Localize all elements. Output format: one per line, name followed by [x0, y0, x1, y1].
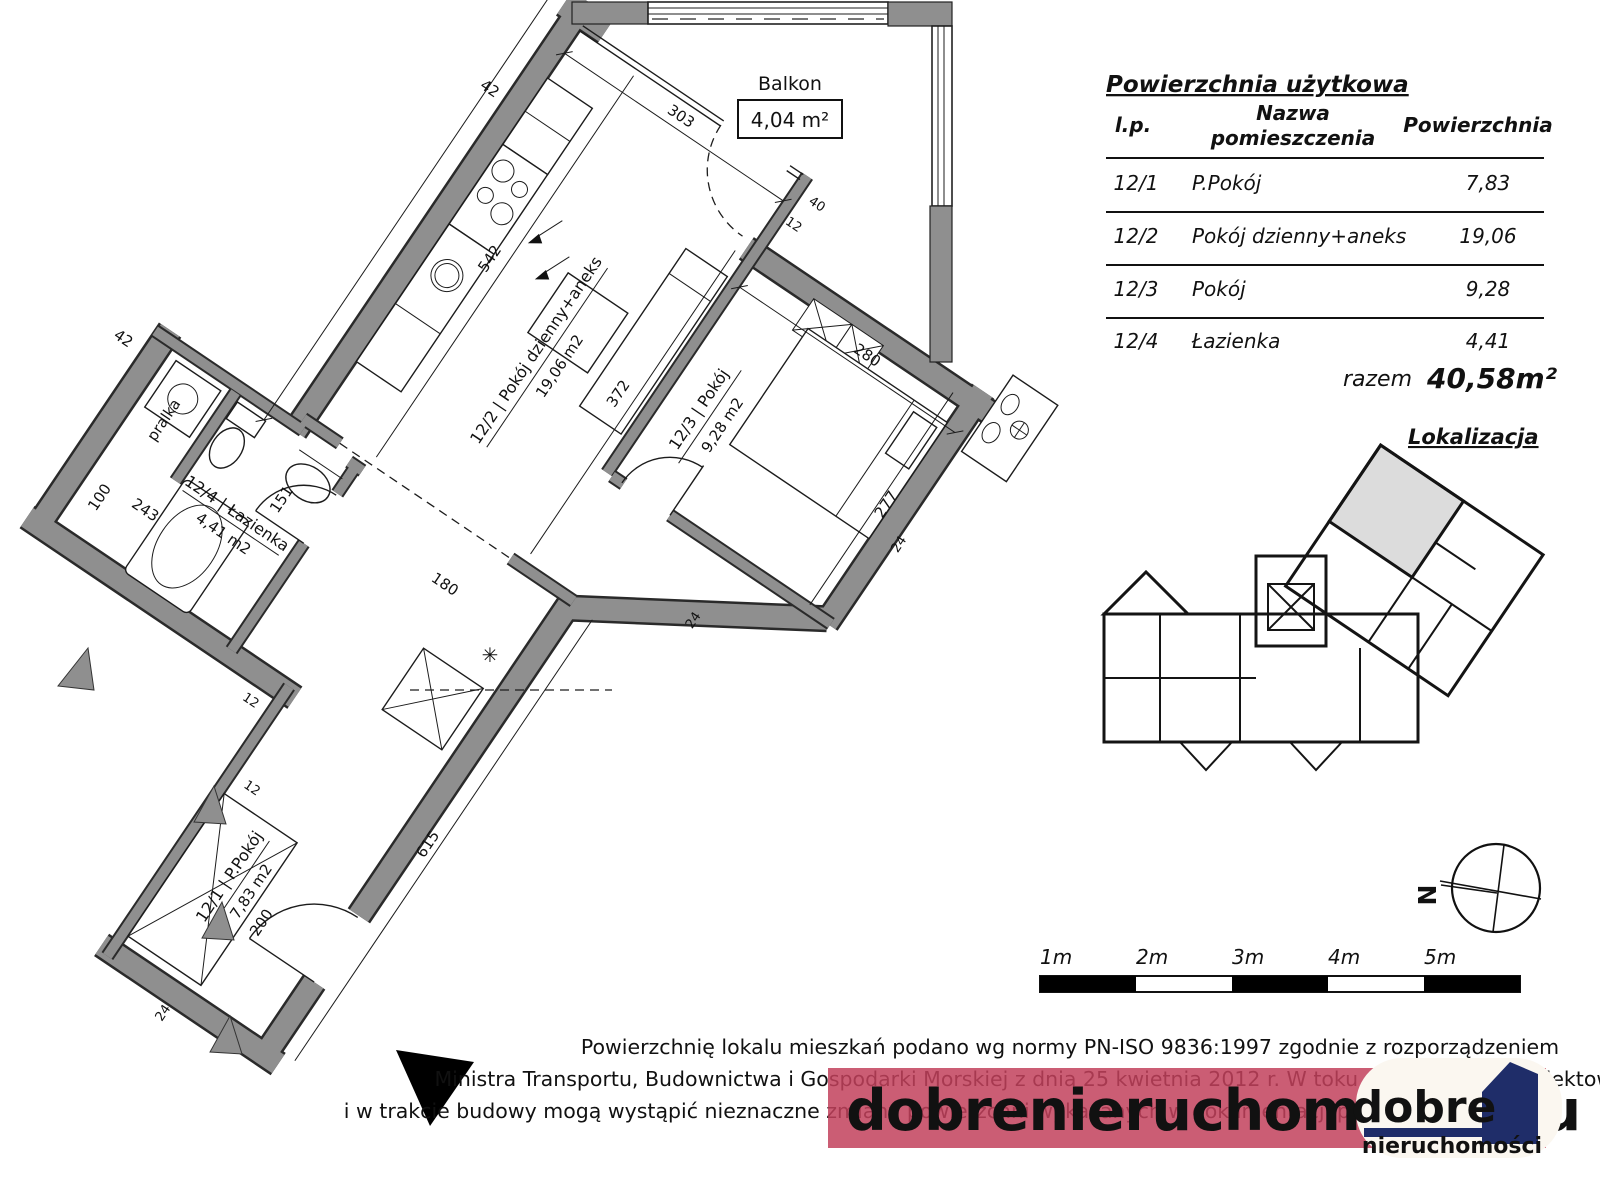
table-row: 12/1 P.Pokój 7,83 — [1114, 171, 1511, 195]
dim-100: 100 — [84, 480, 115, 514]
balcony: Balkon 4,04 m² — [572, 2, 952, 362]
dim-42b: 42 — [111, 326, 137, 352]
location-map — [1104, 445, 1543, 770]
scale-4m: 4m — [1328, 945, 1360, 969]
total-value: 40,58m² — [1426, 362, 1558, 395]
scale-bar: 1m 2m 3m 4m 5m — [1040, 945, 1520, 992]
row1-area: 7,83 — [1466, 171, 1511, 195]
scale-5m: 5m — [1424, 945, 1456, 969]
scale-2m: 2m — [1136, 945, 1168, 969]
row2-name: Pokój dzienny+aneks — [1192, 224, 1406, 248]
localization: Lokalizacja — [1104, 425, 1543, 770]
dim-180: 180 — [428, 569, 462, 600]
table-row: 12/4 Łazienka 4,41 — [1114, 329, 1511, 353]
table-row: 12/3 Pokój 9,28 — [1114, 277, 1511, 301]
scale-3m: 3m — [1232, 945, 1264, 969]
area-table: Powierzchnia użytkowa l.p. Nazwa pomiesz… — [1106, 72, 1558, 395]
col-header-name-1: Nazwa — [1256, 101, 1330, 125]
row4-name: Łazienka — [1191, 329, 1280, 353]
row1-lp: 12/1 — [1114, 171, 1159, 195]
balcony-area: 4,04 m² — [751, 108, 829, 132]
row3-lp: 12/3 — [1114, 277, 1159, 301]
dim-12b: 12 — [241, 778, 263, 800]
row4-lp: 12/4 — [1114, 329, 1159, 353]
row2-area: 19,06 — [1459, 224, 1516, 248]
floorplan-sheet: { "table": { "title": "Powierzchnia użyt… — [0, 0, 1600, 1180]
logo-text-bottom: nieruchomości — [1362, 1134, 1542, 1159]
row4-area: 4,41 — [1466, 329, 1511, 353]
disclaimer-line-1: Powierzchnię lokalu mieszkań podano wg n… — [581, 1035, 1559, 1059]
dim-42a: 42 — [477, 76, 503, 102]
sheet-canvas: 303 542 372 280 277 24 24 24 151 243 100… — [0, 0, 1600, 1180]
table-title: Powierzchnia użytkowa — [1106, 72, 1409, 98]
highlighted-unit — [1329, 445, 1463, 577]
balcony-railing-top — [648, 2, 888, 24]
row1-name: P.Pokój — [1192, 171, 1262, 195]
compass: N — [1413, 844, 1541, 932]
dim-12c: 12 — [239, 690, 261, 712]
scale-1m: 1m — [1040, 945, 1072, 969]
row2-lp: 12/2 — [1114, 224, 1159, 248]
north-label: N — [1413, 885, 1442, 906]
dishwasher-star-icon: ✳ — [482, 643, 499, 667]
dim-40: 40 — [806, 194, 828, 216]
col-header-name-2: pomieszczenia — [1210, 126, 1376, 150]
dim-303: 303 — [664, 101, 698, 132]
agency-logo: dobre nieruchomości — [1352, 1058, 1562, 1159]
logo-text-top: dobre — [1352, 1082, 1497, 1133]
balcony-railing-right — [932, 26, 952, 206]
col-header-area: Powierzchnia — [1403, 113, 1552, 137]
table-row: 12/2 Pokój dzienny+aneks 19,06 — [1114, 224, 1517, 248]
localization-title: Lokalizacja — [1408, 425, 1539, 449]
balcony-label: Balkon — [758, 73, 822, 95]
row3-name: Pokój — [1192, 277, 1246, 301]
row3-area: 9,28 — [1466, 277, 1511, 301]
balcony-window-band — [579, 26, 803, 180]
col-header-lp: l.p. — [1115, 113, 1151, 137]
total-label: razem — [1343, 367, 1412, 392]
